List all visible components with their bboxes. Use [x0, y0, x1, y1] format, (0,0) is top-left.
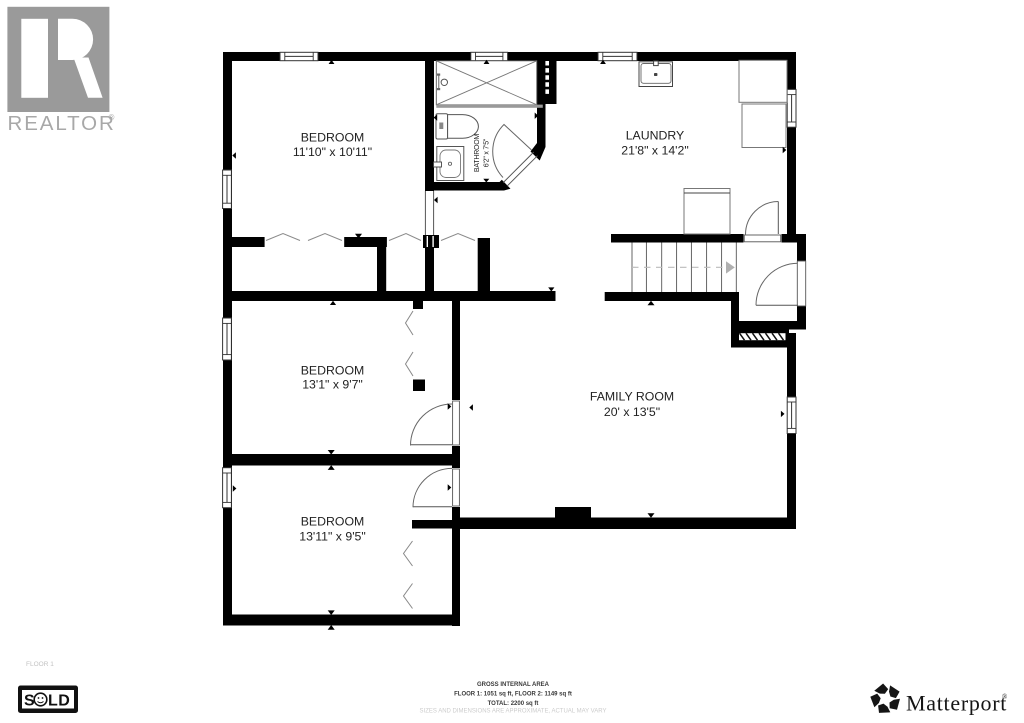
svg-text:20' x 13'5": 20' x 13'5" [604, 405, 660, 419]
svg-text:FAMILY ROOM: FAMILY ROOM [590, 390, 674, 404]
svg-text:®: ® [1002, 693, 1008, 701]
svg-text:13'1" x 9'7": 13'1" x 9'7" [302, 378, 363, 392]
svg-text:LD: LD [48, 693, 70, 710]
svg-text:BATHROOM: BATHROOM [474, 133, 481, 172]
svg-text:SIZES AND DIMENSIONS ARE APPRO: SIZES AND DIMENSIONS ARE APPROXIMATE, AC… [420, 709, 607, 715]
svg-text:FLOOR 1: 1051 sq ft, FLOOR 2:: FLOOR 1: 1051 sq ft, FLOOR 2: 1149 sq ft [454, 692, 572, 698]
svg-text:13'11" x 9'5": 13'11" x 9'5" [299, 530, 366, 544]
svg-text:BEDROOM: BEDROOM [301, 131, 365, 145]
svg-text:FLOOR 1: FLOOR 1 [26, 661, 54, 668]
svg-text:Matterport: Matterport [906, 691, 1007, 716]
svg-text:BEDROOM: BEDROOM [301, 364, 365, 378]
svg-text:TOTAL: 2200 sq ft: TOTAL: 2200 sq ft [488, 701, 539, 707]
svg-text:REALTOR: REALTOR [8, 112, 116, 135]
svg-text:21'8" x 14'2": 21'8" x 14'2" [621, 144, 688, 158]
svg-text:11'10" x 10'11": 11'10" x 10'11" [293, 145, 372, 159]
svg-text:GROSS INTERNAL AREA: GROSS INTERNAL AREA [477, 682, 550, 688]
svg-text:LAUNDRY: LAUNDRY [626, 129, 685, 143]
svg-text:BEDROOM: BEDROOM [301, 515, 365, 529]
svg-text:®: ® [109, 113, 115, 122]
svg-text:6'2" x 7'5": 6'2" x 7'5" [484, 138, 491, 167]
svg-text:S: S [24, 693, 35, 710]
